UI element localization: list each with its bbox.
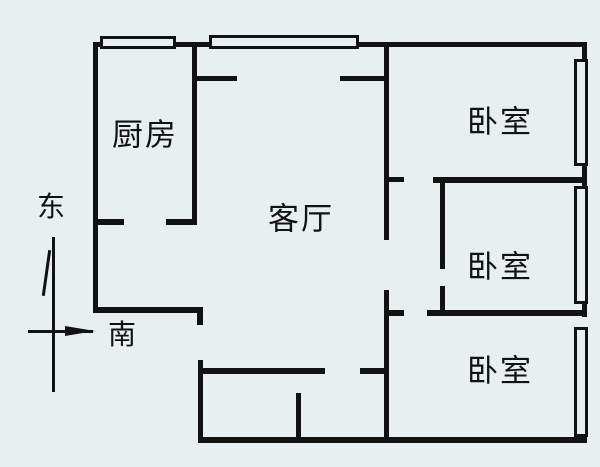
compass-arrow-barb — [42, 250, 51, 296]
window-bedroom2-right — [574, 186, 588, 304]
wall-bottom — [198, 437, 587, 443]
window-bedroom1-right — [574, 59, 588, 166]
wall-entry-top — [93, 307, 202, 313]
wall-balcony-divider — [296, 393, 301, 439]
living-room-label: 客厅 — [268, 204, 334, 235]
wall-living-right-upper — [384, 42, 389, 240]
wall-bedroom2-left-upper — [440, 178, 445, 269]
wall-stub-hall-bottom — [384, 310, 404, 316]
compass-vertical-axis — [52, 237, 55, 392]
wall-balcony-top-left — [198, 368, 325, 374]
wall-stub-north-left — [196, 76, 237, 81]
floor-plan: 厨房 客厅 卧室 卧室 卧室 东 南 — [0, 0, 600, 467]
bedroom1-label: 卧室 — [467, 107, 533, 138]
wall-kitchen-right — [192, 42, 197, 225]
wall-balcony-top-right — [360, 368, 389, 374]
wall-stub-hall-top — [384, 177, 404, 182]
window-kitchen-top — [100, 36, 176, 49]
window-living-top — [209, 35, 359, 49]
wall-entry-door-jamb — [197, 307, 203, 325]
bedroom3-label: 卧室 — [467, 356, 533, 387]
wall-kitchen-bottom-right — [166, 219, 197, 225]
wall-stub-north-right — [340, 76, 387, 81]
window-bedroom3-right — [574, 327, 588, 437]
wall-bedroom1-bottom — [433, 177, 587, 183]
wall-left-upper — [93, 42, 98, 313]
wall-bedroom2-bottom — [427, 310, 587, 316]
compass-south-label: 南 — [108, 322, 136, 350]
wall-kitchen-bottom-left — [93, 219, 124, 225]
compass-east-label: 东 — [37, 194, 65, 222]
compass-south-arrow-icon — [65, 326, 95, 336]
kitchen-label: 厨房 — [112, 120, 178, 151]
bedroom2-label: 卧室 — [467, 252, 533, 283]
